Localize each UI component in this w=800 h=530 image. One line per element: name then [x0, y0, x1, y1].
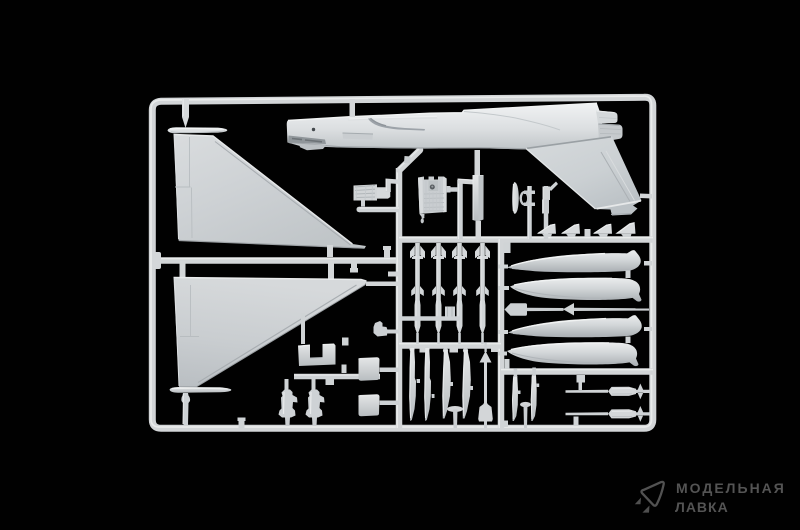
svg-text:МОДЕЛЬНАЯ: МОДЕЛЬНАЯ: [676, 480, 786, 496]
svg-text:ЛАВКА: ЛАВКА: [675, 499, 729, 515]
